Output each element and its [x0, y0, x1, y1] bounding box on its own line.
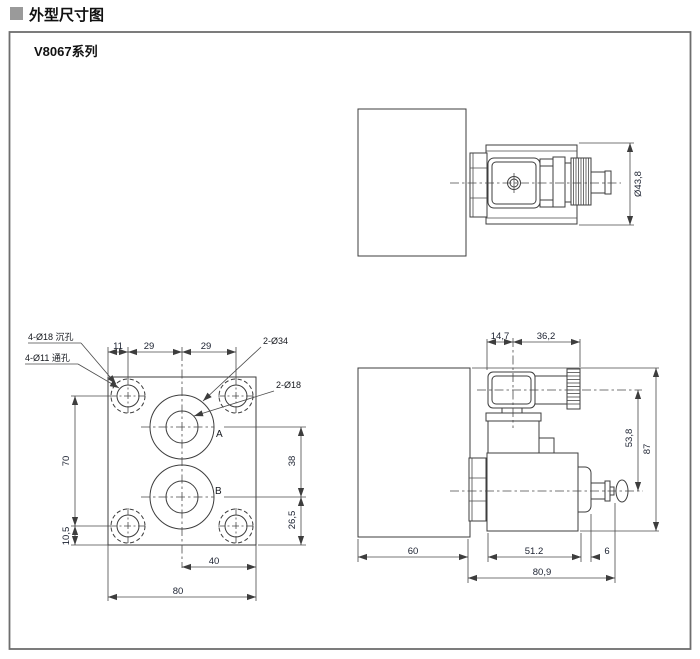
- series-label: V8067系列: [34, 44, 98, 59]
- coil-body: [488, 421, 539, 453]
- dim-port-spacing: 38: [287, 456, 298, 467]
- header-bullet-square: [10, 7, 23, 20]
- page-header: 外型尺寸图: [10, 6, 104, 24]
- dim-valve-length: 51.2: [525, 546, 544, 557]
- knurled-nut-side-view: [567, 369, 580, 409]
- coil-flange: [486, 413, 541, 421]
- leader-port-small-label: 2-Ø18: [276, 380, 301, 390]
- front-view-geometry: A B: [108, 352, 256, 568]
- dim-hole-to-bottom: 10,5: [61, 527, 72, 546]
- hex-nut-side-view: [469, 458, 486, 521]
- end-cap-nut: [578, 467, 591, 512]
- port-b-label: B: [215, 486, 222, 497]
- leader-through-hole-label: 4-Ø11 通孔: [25, 353, 70, 363]
- page-title: 外型尺寸图: [28, 6, 104, 24]
- drawing-canvas: 外型尺寸图 V8067系列: [0, 0, 700, 659]
- dim-plate-width: 80: [173, 586, 184, 597]
- dim-center-to-edge: 40: [209, 556, 220, 567]
- dim-hole-spacing-vertical: 70: [61, 456, 72, 467]
- dim-port-b-to-bottom: 26,5: [287, 511, 298, 530]
- dim-coil-diameter: Ø43,8: [633, 171, 644, 197]
- knurled-nut-top-view: [571, 158, 591, 205]
- dim-overall-length: 80,9: [533, 567, 552, 578]
- dim-connector-offset: 14,7: [491, 331, 510, 342]
- dim-connector-width: 36,2: [537, 331, 556, 342]
- dim-hole-to-center-left: 29: [144, 341, 155, 352]
- valve-body-side-view: [487, 453, 578, 531]
- hex-nut-top-view: [470, 153, 487, 217]
- drawing-border-box: [10, 32, 691, 649]
- dim-edge-to-hole: 11: [113, 341, 123, 352]
- dim-centerline-offset: 53,8: [624, 429, 635, 448]
- dim-block-width: 60: [408, 546, 419, 557]
- port-a-label: A: [216, 429, 223, 440]
- dimension-drawing-page: 外型尺寸图 V8067系列: [0, 0, 700, 659]
- dim-center-to-hole-right: 29: [201, 341, 212, 352]
- leader-counterbore-label: 4-Ø18 沉孔: [28, 332, 74, 342]
- dim-cap-length: 6: [604, 546, 609, 557]
- manual-override-pin-top-view: [591, 171, 611, 194]
- leader-port-large-label: 2-Ø34: [263, 336, 288, 346]
- manifold-block: [358, 368, 470, 537]
- valve-body-top-view: [358, 109, 466, 256]
- dim-overall-height: 87: [642, 444, 653, 455]
